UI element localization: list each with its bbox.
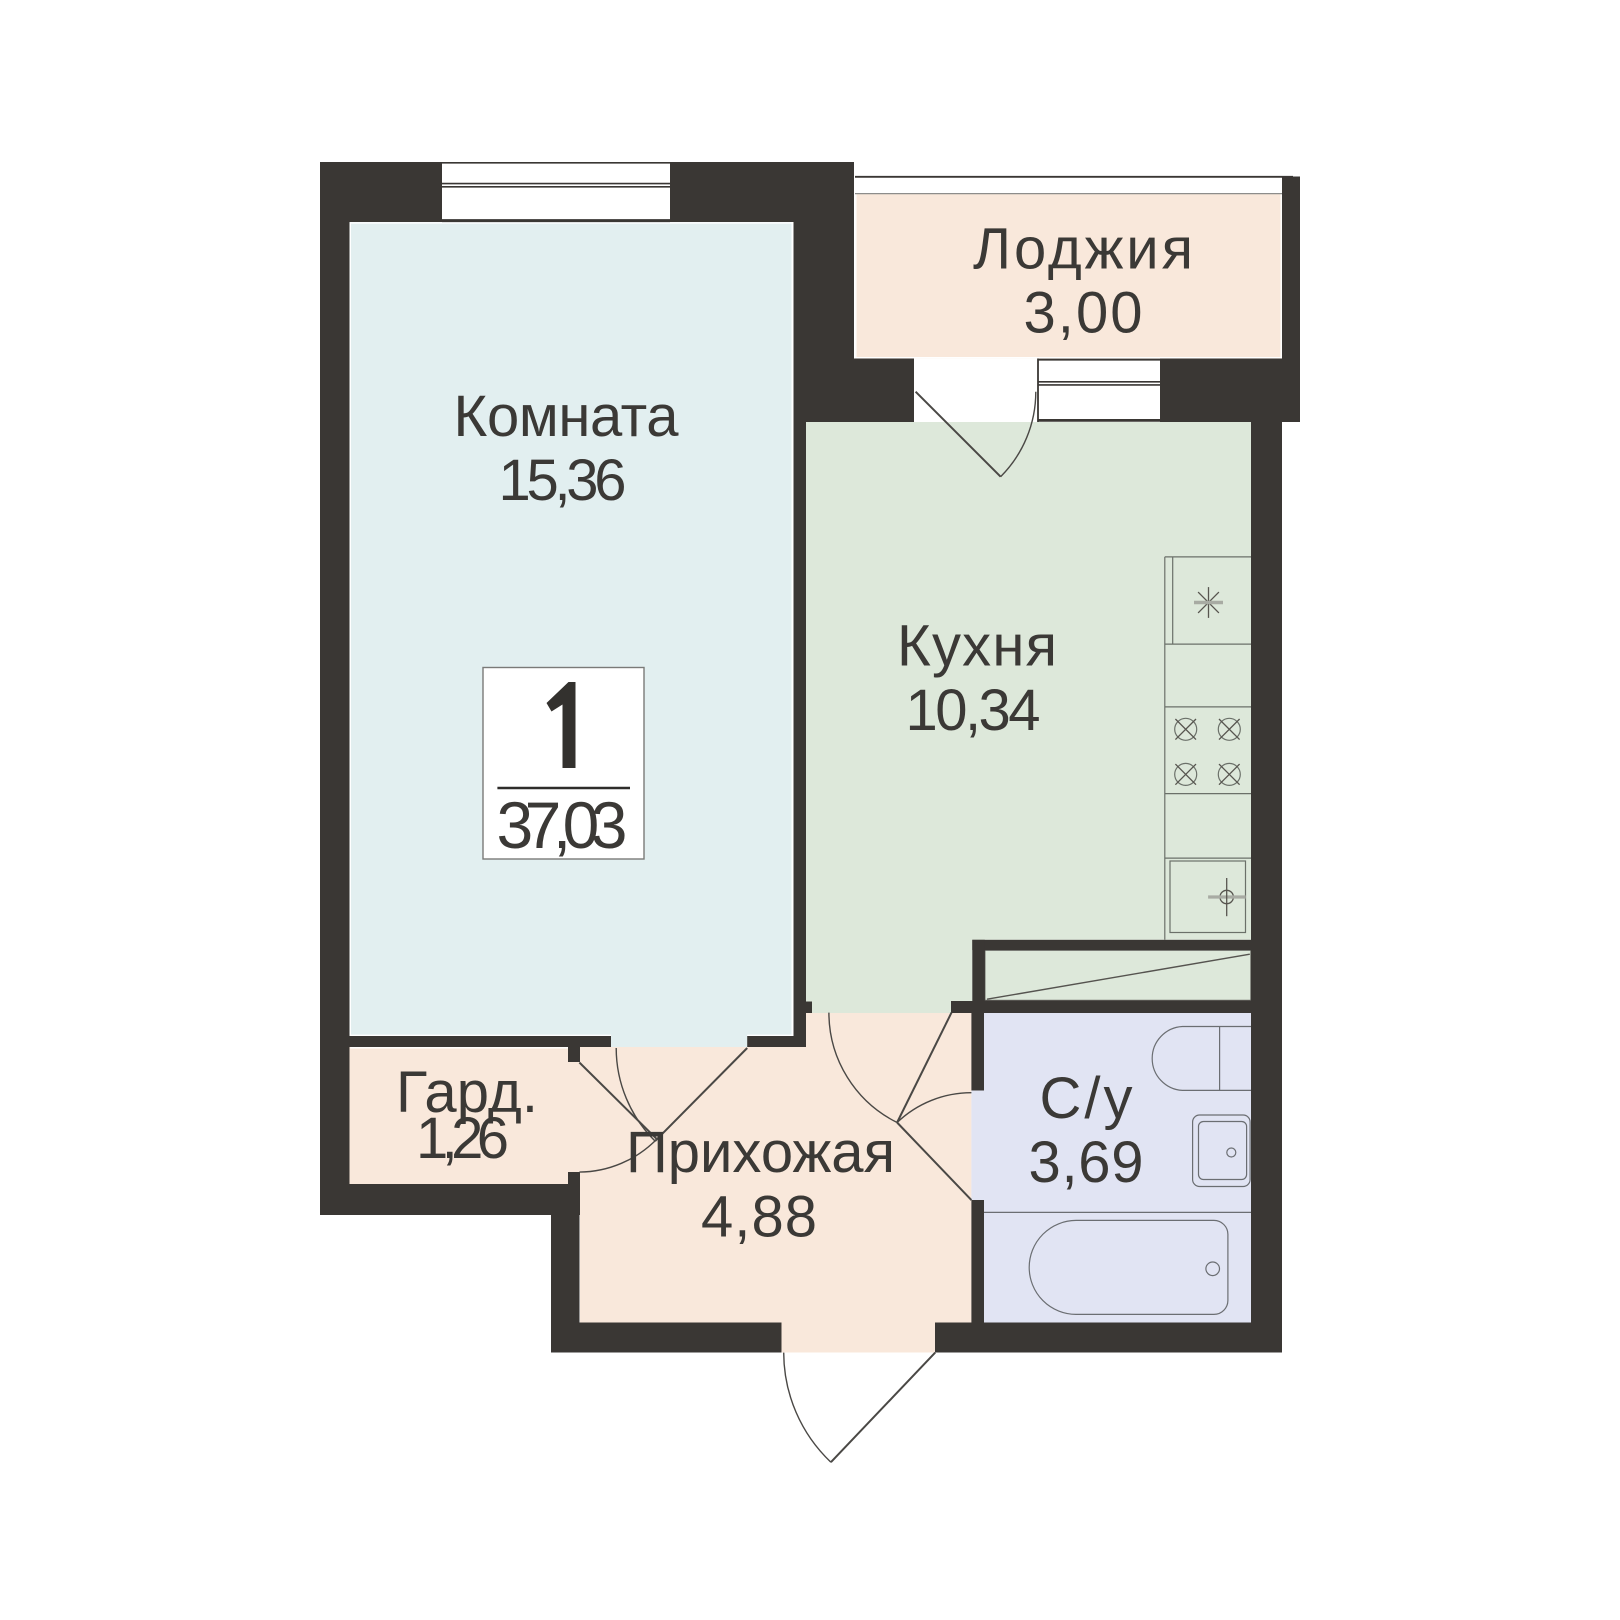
svg-text:15,36: 15,36 [499, 448, 627, 513]
svg-text:37,03: 37,03 [497, 788, 628, 862]
svg-text:3,69: 3,69 [1029, 1130, 1144, 1195]
svg-text:Кухня: Кухня [897, 614, 1057, 679]
svg-text:3,00: 3,00 [1024, 281, 1143, 346]
svg-text:4,88: 4,88 [701, 1185, 817, 1250]
svg-text:Прихожая: Прихожая [626, 1120, 895, 1185]
svg-text:10,34: 10,34 [906, 678, 1041, 743]
svg-text:Комната: Комната [454, 384, 680, 449]
svg-text:1,26: 1,26 [416, 1106, 509, 1171]
svg-text:С/у: С/у [1040, 1066, 1133, 1131]
